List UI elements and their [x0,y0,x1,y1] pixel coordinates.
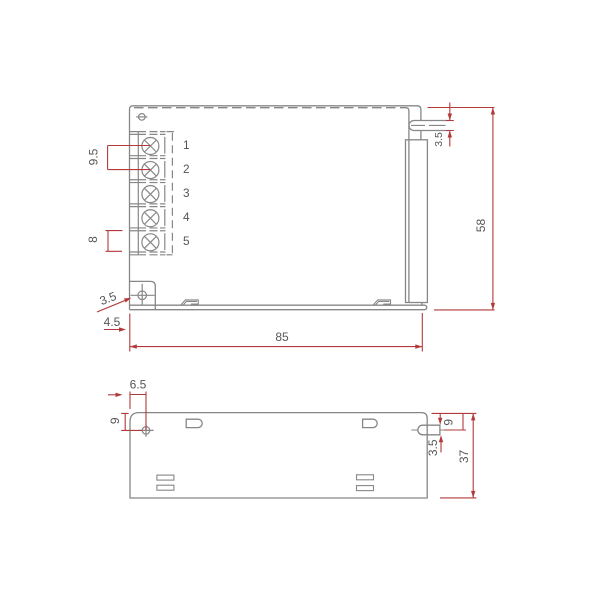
svg-text:37: 37 [457,450,471,464]
svg-text:9: 9 [108,417,122,424]
svg-text:2: 2 [183,162,190,176]
svg-text:6.5: 6.5 [130,377,147,391]
svg-text:8: 8 [86,236,100,243]
svg-text:4.5: 4.5 [104,315,121,329]
svg-text:3.5: 3.5 [433,132,445,147]
svg-text:4: 4 [183,210,190,224]
svg-text:3.5: 3.5 [426,439,440,456]
svg-text:5: 5 [183,234,190,248]
svg-text:9: 9 [441,419,455,426]
svg-text:3.5: 3.5 [98,289,119,308]
svg-text:9.5: 9.5 [87,148,101,165]
svg-text:85: 85 [275,330,289,344]
svg-text:3: 3 [183,186,190,200]
svg-text:1: 1 [183,138,190,152]
svg-text:58: 58 [474,219,488,233]
